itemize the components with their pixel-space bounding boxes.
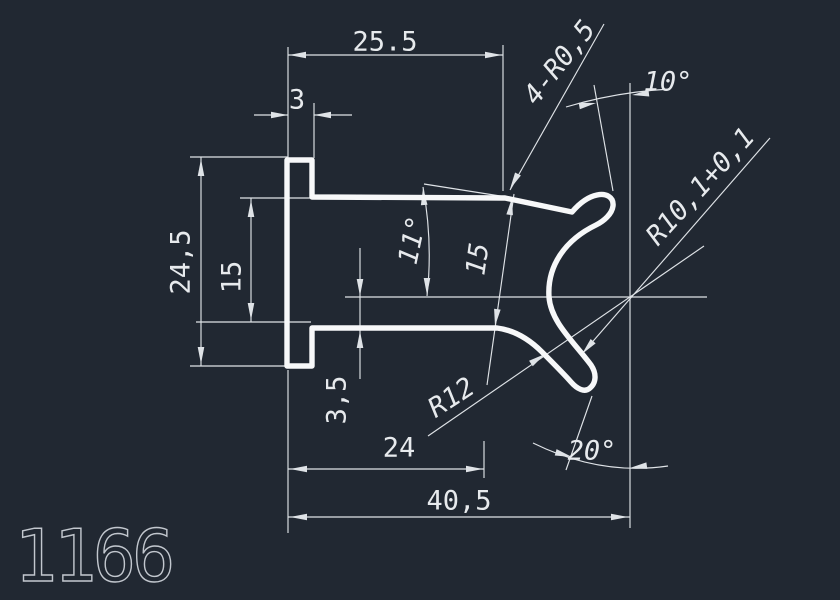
dim-label-slot-width: 15 [460, 241, 495, 278]
arrowhead [507, 172, 521, 190]
dim-label-bottom-tip-angle: 20° [568, 435, 617, 466]
arrowhead [357, 279, 364, 296]
arrowhead [271, 112, 288, 119]
arrowhead [630, 462, 648, 471]
dim-line [487, 194, 514, 385]
arrowhead [611, 514, 628, 521]
dim-label-overall-height: 24,5 [165, 229, 196, 294]
angle-reference-line [594, 85, 613, 191]
arrowhead [248, 200, 255, 217]
dim-top-tip-angle: 10° [566, 66, 692, 191]
dim-label-outer-radius: R12 [423, 372, 481, 425]
dim-label-center-offset: 3,5 [321, 376, 352, 425]
arrowhead [466, 466, 483, 473]
arrowhead [290, 514, 307, 521]
drawing-canvas[interactable]: 25.5 3 24,5 15 3,5 [0, 0, 840, 600]
dim-label-top-width: 25.5 [352, 26, 417, 57]
arrowhead [248, 303, 255, 320]
profile-outline [287, 160, 613, 390]
dim-label-total-width: 40,5 [426, 485, 491, 516]
dim-inner-radius: R10,1+0,1 [580, 122, 770, 356]
dim-label-inner-radius: R10,1+0,1 [640, 122, 761, 251]
arrowhead [289, 52, 306, 59]
arrowhead [314, 112, 331, 119]
dim-flange-thickness: 3 [254, 84, 352, 158]
arrowhead [424, 278, 431, 295]
arrowhead [290, 466, 307, 473]
dim-center-offset: 3,5 [321, 248, 363, 424]
dim-arm-gap: 15 [196, 198, 311, 322]
dim-total-width: 40,5 [288, 485, 630, 520]
arrowhead [357, 331, 364, 348]
part-number: 1166 [14, 514, 171, 598]
dim-label-flange-thickness: 3 [289, 84, 305, 115]
dim-top-width: 25.5 [288, 26, 503, 191]
arrowhead [485, 52, 502, 59]
dim-arm-angle: 11° [393, 184, 513, 296]
dim-slot-width: 15 [460, 194, 515, 385]
dim-bottom-tip-angle: 20° [533, 396, 668, 471]
cad-drawing: 25.5 3 24,5 15 3,5 [0, 0, 840, 600]
dim-label-tip-radii: 4-R0,5 [518, 15, 602, 111]
arrowhead [198, 159, 205, 176]
dim-tip-radii: 4-R0,5 [507, 15, 604, 191]
dim-label-arm-gap: 15 [216, 261, 247, 294]
dim-label-top-tip-angle: 10° [644, 66, 693, 97]
dim-label-arm-angle: 11° [393, 213, 433, 267]
dim-label-arm-length: 24 [383, 432, 416, 463]
arrowhead [198, 347, 205, 364]
